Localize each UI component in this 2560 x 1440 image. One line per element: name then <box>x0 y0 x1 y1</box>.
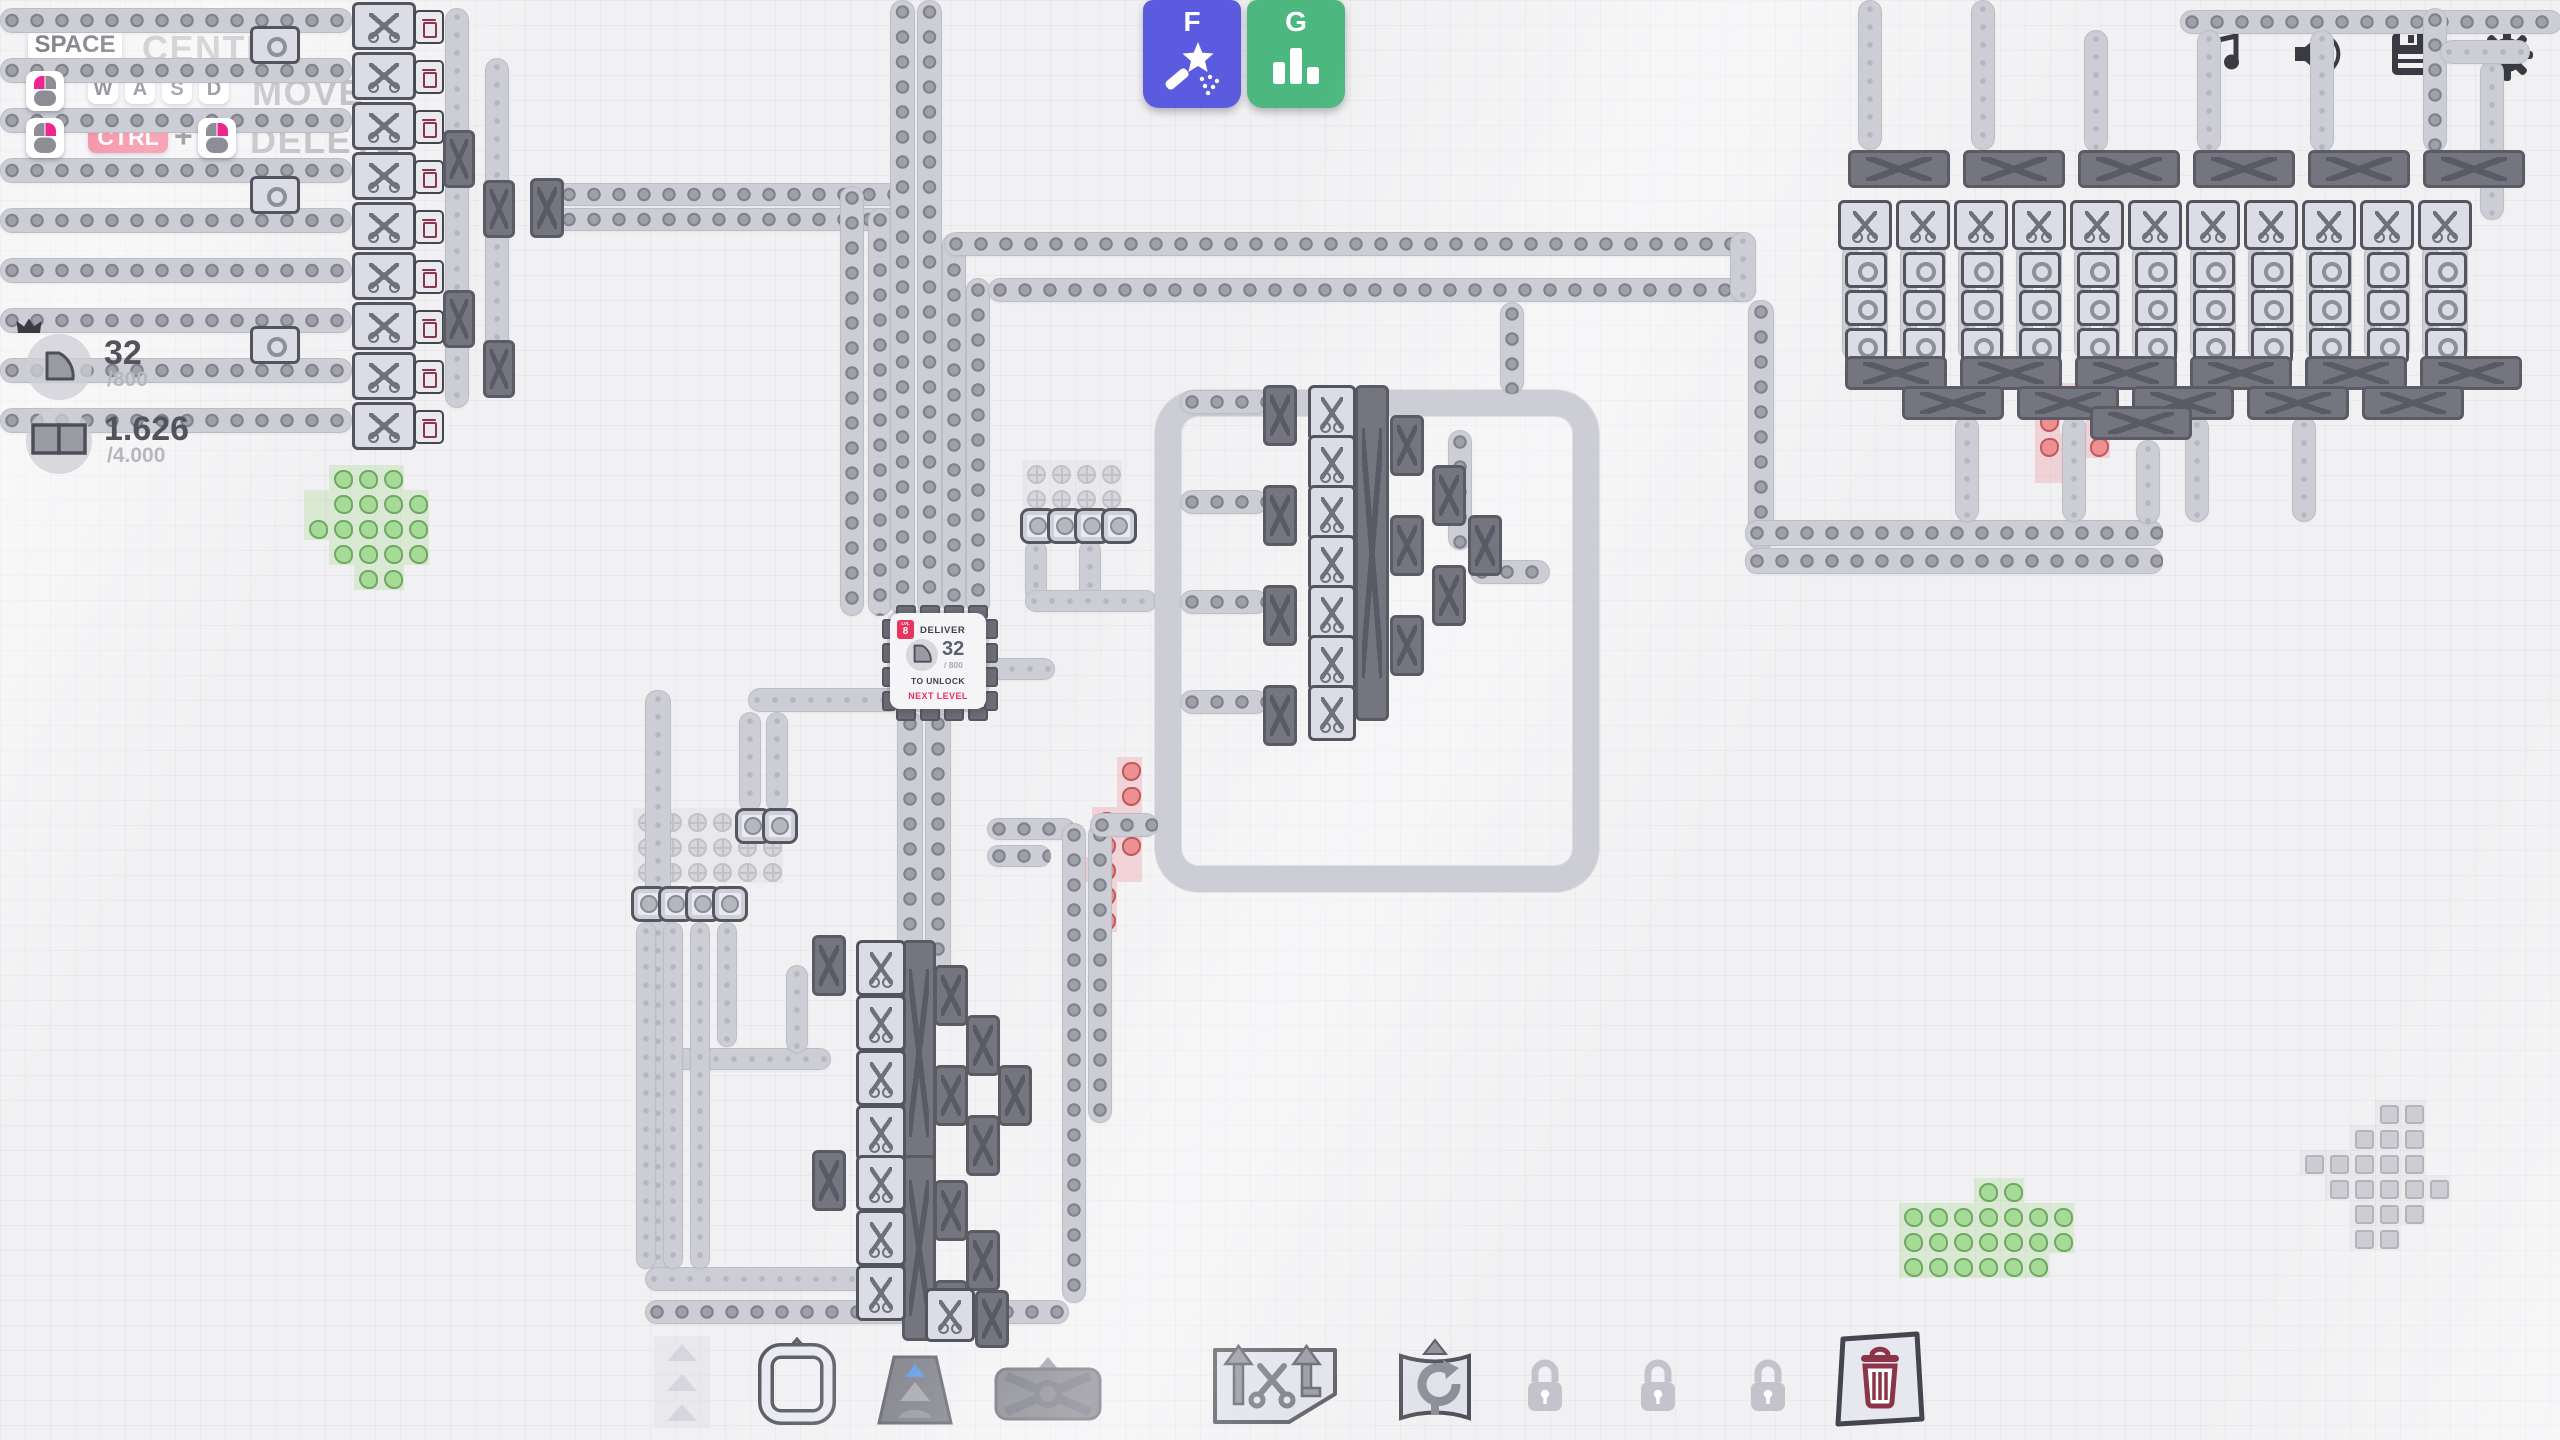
balancer-machine <box>1848 150 1950 188</box>
rotator-machine <box>1961 252 2003 288</box>
balancer-machine <box>483 180 515 238</box>
balancer-machine <box>1263 385 1297 446</box>
balancer-machine <box>1263 685 1297 746</box>
cutter-machine <box>1308 385 1356 441</box>
balancer-machine <box>1432 465 1466 526</box>
cutter-machine <box>1308 685 1356 741</box>
mouse-right-button-icon <box>198 118 236 159</box>
rotator-machine <box>1903 252 1945 288</box>
cutter-machine <box>2244 200 2298 250</box>
cutter-machine <box>1896 200 1950 250</box>
balancer-machine <box>2193 150 2295 188</box>
cutter-machine <box>1308 585 1356 641</box>
trash-machine <box>414 160 444 194</box>
balancer-machine <box>1468 515 1502 576</box>
rotator-machine <box>2251 252 2293 288</box>
rotator-machine <box>2193 252 2235 288</box>
rotator-machine <box>1903 290 1945 326</box>
rotator-machine <box>250 176 300 214</box>
balancer-machine <box>2305 356 2407 390</box>
trash-machine <box>414 110 444 144</box>
rotator-machine <box>1845 252 1887 288</box>
balancer-machine <box>2190 356 2292 390</box>
pinned-shape-blueprint[interactable] <box>26 408 92 474</box>
balancer-machine <box>902 940 936 1166</box>
mouse-left-button-icon <box>26 71 64 112</box>
rotator-machine <box>2077 252 2119 288</box>
quarter-pie-shape-icon <box>39 345 79 390</box>
cutter-machine <box>1954 200 2008 250</box>
cutter-machine <box>1308 485 1356 541</box>
cutter-machine <box>2012 200 2066 250</box>
cutter-machine <box>1308 635 1356 691</box>
cutter-machine <box>925 1288 975 1342</box>
balancer-machine <box>530 178 564 238</box>
unlock-label-1: TO UNLOCK <box>890 676 986 686</box>
cutter-machine <box>352 152 416 200</box>
rotator-machine <box>2309 252 2351 288</box>
rotator-machine <box>2425 252 2467 288</box>
cutter-machine <box>352 302 416 350</box>
balancer-machine <box>1263 585 1297 646</box>
rotator-machine <box>250 326 300 364</box>
cutter-machine <box>2302 200 2356 250</box>
hub-building[interactable]: LVL8 DELIVER 32 / 800 TO UNLOCK NEXT LEV… <box>890 613 986 709</box>
balancer-machine <box>1355 385 1389 721</box>
delivered-count: 32 <box>942 638 964 661</box>
balancer-machine <box>966 1015 1000 1076</box>
quarter-pie-shape-icon <box>902 633 942 678</box>
cutter-machine <box>856 1265 906 1321</box>
balancer-machine <box>966 1230 1000 1291</box>
rotator-machine <box>1961 290 2003 326</box>
cutter-machine <box>352 252 416 300</box>
balancer-machine <box>934 1065 968 1126</box>
rotator-machine <box>2425 290 2467 326</box>
balancer-machine <box>1960 356 2062 390</box>
rotator-machine <box>2367 290 2409 326</box>
trash-machine <box>414 60 444 94</box>
rotator-machine <box>250 26 300 64</box>
extractor-machine <box>712 886 748 922</box>
trash-machine <box>414 360 444 394</box>
rotator-machine <box>2135 252 2177 288</box>
cutter-machine <box>856 1105 906 1161</box>
balancer-machine <box>1902 386 2004 420</box>
pinned-target: /800 <box>107 368 148 392</box>
balancer-machine <box>443 130 475 188</box>
trash-machine <box>414 410 444 444</box>
cutter-machine <box>2070 200 2124 250</box>
cutter-machine <box>856 1155 906 1211</box>
cutter-machine <box>2418 200 2472 250</box>
balancer-machine <box>934 965 968 1026</box>
balancer-machine <box>1390 515 1424 576</box>
balancer-machine <box>1263 485 1297 546</box>
cutter-machine <box>2128 200 2182 250</box>
pinned-shape-level[interactable] <box>26 334 92 400</box>
rotator-machine <box>2019 290 2061 326</box>
balancer-machine <box>443 290 475 348</box>
balancer-machine <box>2075 356 2177 390</box>
cutter-machine <box>2186 200 2240 250</box>
cutter-machine <box>352 352 416 400</box>
cutter-machine <box>352 2 416 50</box>
balancer-machine <box>1432 565 1466 626</box>
cutter-machine <box>352 52 416 100</box>
unlock-label-2: NEXT LEVEL <box>890 691 986 701</box>
trash-machine <box>414 10 444 44</box>
cutter-machine <box>856 1210 906 1266</box>
two-squares-shape-icon <box>30 421 88 462</box>
balancer-machine <box>1390 615 1424 676</box>
balancer-machine <box>1845 356 1947 390</box>
cutter-machine <box>1308 535 1356 591</box>
trash-machine <box>414 210 444 244</box>
cutter-machine <box>1308 435 1356 491</box>
trash-machine <box>414 310 444 344</box>
rotator-machine <box>2367 252 2409 288</box>
balancer-machine <box>934 1180 968 1241</box>
pinned-target: /4.000 <box>107 444 165 468</box>
balancer-machine <box>2308 150 2410 188</box>
rotator-machine <box>2309 290 2351 326</box>
rotator-machine <box>1845 290 1887 326</box>
mouse-right-button-icon <box>26 118 64 159</box>
balancer-machine <box>966 1115 1000 1176</box>
cutter-machine <box>856 1050 906 1106</box>
cutter-machine <box>1838 200 1892 250</box>
balancer-machine <box>1390 415 1424 476</box>
balancer-machine <box>1963 150 2065 188</box>
rotator-machine <box>2077 290 2119 326</box>
balancer-machine <box>483 340 515 398</box>
cutter-machine <box>352 202 416 250</box>
cutter-machine <box>856 940 906 996</box>
rotator-machine <box>2251 290 2293 326</box>
goal-shape <box>906 639 938 671</box>
balancer-machine <box>2090 406 2192 440</box>
rotator-machine <box>2135 290 2177 326</box>
balancer-machine <box>998 1065 1032 1126</box>
cutter-machine <box>352 402 416 450</box>
cutter-machine <box>856 995 906 1051</box>
balancer-machine <box>2078 150 2180 188</box>
game-canvas[interactable] <box>0 0 2560 1440</box>
rotator-machine <box>2019 252 2061 288</box>
balancer-machine <box>812 1150 846 1211</box>
balancer-machine <box>2362 386 2464 420</box>
goal-count: / 800 <box>944 660 963 670</box>
crown-icon <box>15 317 43 342</box>
balancer-machine <box>2247 386 2349 420</box>
extractor-machine <box>762 808 798 844</box>
balancer-machine <box>975 1290 1009 1348</box>
rotator-machine <box>2193 290 2235 326</box>
trash-machine <box>414 260 444 294</box>
cutter-machine <box>352 102 416 150</box>
game-viewport: SPACE CENTER W A S D MOVE CTRL + DELETE … <box>0 0 2560 1440</box>
balancer-machine <box>812 935 846 996</box>
balancer-machine <box>2420 356 2522 390</box>
extractor-machine <box>1101 508 1137 544</box>
cutter-machine <box>2360 200 2414 250</box>
balancer-machine <box>2423 150 2525 188</box>
